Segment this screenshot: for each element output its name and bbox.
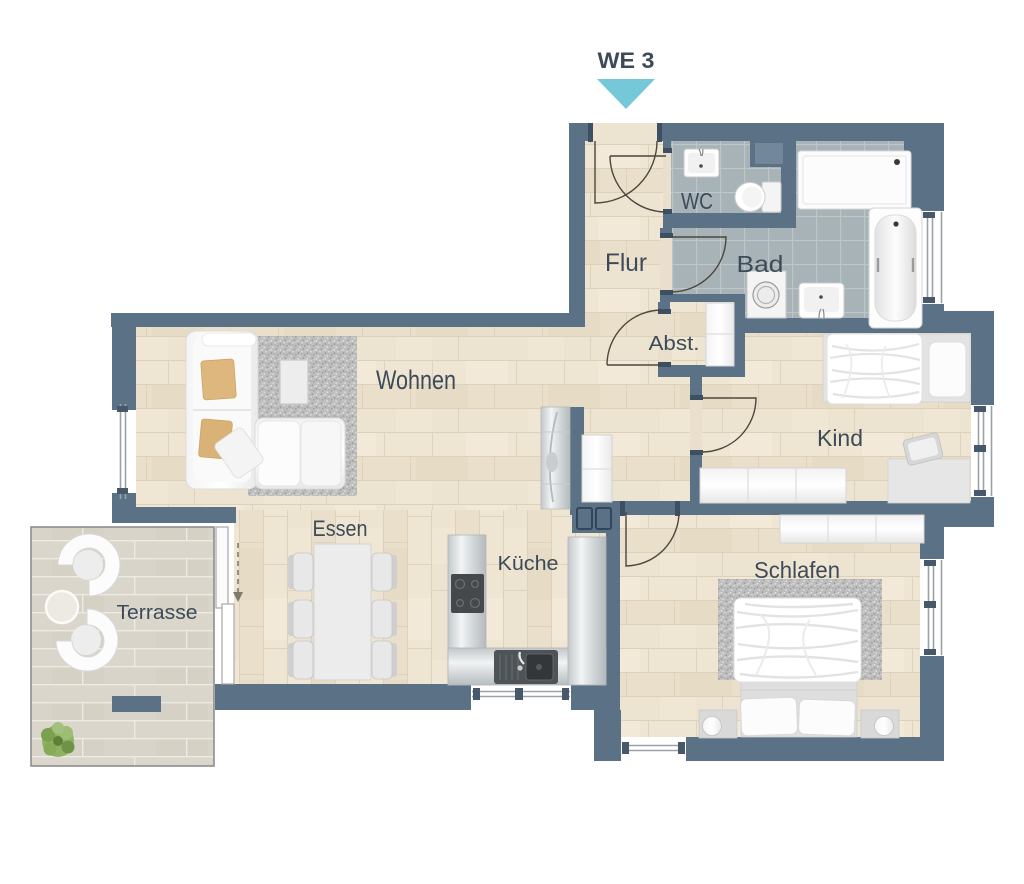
svg-text:Küche: Küche	[498, 553, 559, 575]
svg-text:Kind: Kind	[817, 425, 863, 451]
svg-text:Abst.: Abst.	[649, 333, 700, 355]
svg-text:Bad: Bad	[737, 251, 784, 277]
svg-text:Flur: Flur	[605, 249, 647, 277]
svg-text:WE 3: WE 3	[598, 48, 655, 73]
svg-text:Schlafen: Schlafen	[754, 557, 840, 583]
svg-text:Terrasse: Terrasse	[117, 601, 198, 624]
svg-text:Wohnen: Wohnen	[376, 365, 456, 395]
svg-text:Essen: Essen	[313, 516, 368, 541]
svg-text:WC: WC	[681, 188, 713, 214]
